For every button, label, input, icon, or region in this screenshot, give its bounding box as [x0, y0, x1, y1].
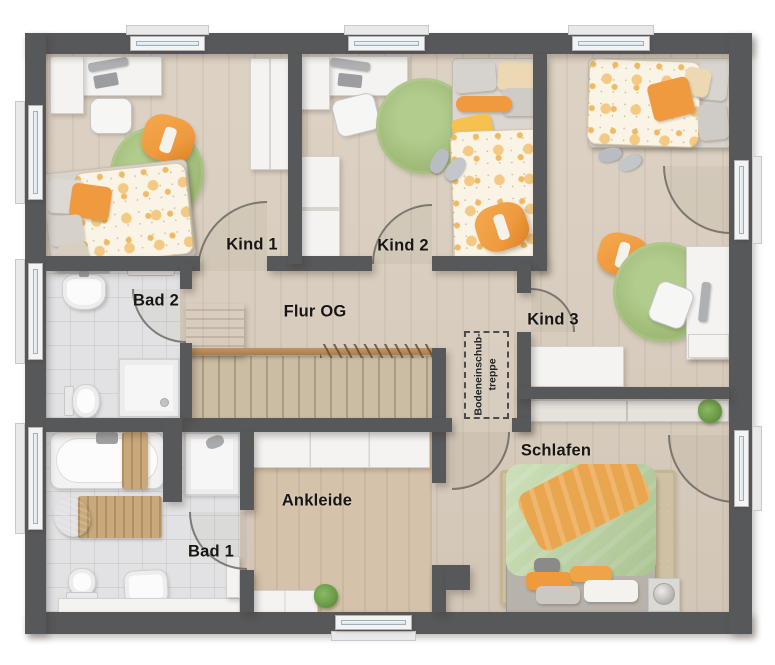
- duvet-wrap: [506, 464, 656, 576]
- wall-kind3-west: [517, 332, 531, 430]
- room-label-flur: Flur OG: [284, 303, 347, 322]
- blanket-roll-orange: [456, 96, 512, 112]
- wall-bad1-ankleide-upper: [240, 432, 254, 510]
- bed-group: [506, 464, 656, 618]
- window-sill: [15, 259, 25, 364]
- shower-tray: [118, 358, 180, 418]
- faucet-icon: [79, 270, 89, 277]
- wall-schlafen-stub: [446, 565, 470, 590]
- room-label-bad2: Bad 2: [133, 292, 179, 311]
- window-glass: [739, 166, 744, 234]
- corner-shelf: [688, 334, 729, 358]
- bed-group: [41, 159, 196, 272]
- wall-kind3-west-stub: [517, 264, 531, 293]
- window-sill: [331, 631, 416, 641]
- stair-railing-balusters: [320, 344, 434, 358]
- room-label-schlafen: Schlafen: [521, 442, 591, 461]
- bathtub-caddy: [122, 432, 148, 489]
- attic-stair-label: Bodeneinschub- treppe: [464, 331, 509, 419]
- toilet-bowl: [72, 384, 100, 418]
- sideboard: [526, 346, 624, 387]
- window-sill: [15, 423, 25, 534]
- keyboard-icon: [337, 73, 362, 88]
- wall-bad2-east-lower: [180, 343, 192, 418]
- wall-bad1-partition: [163, 418, 182, 502]
- desk-chair: [90, 98, 132, 134]
- wall-kind1-south: [46, 256, 200, 271]
- wall-hall-north-mid: [267, 256, 372, 271]
- attic-stair-label-line2: treppe: [486, 331, 500, 419]
- cabinet-bottom: [252, 590, 318, 614]
- pillow-gray: [536, 586, 580, 604]
- staircase-treads: [186, 356, 432, 418]
- bed-group: [588, 58, 732, 148]
- room-label-kind2: Kind 2: [377, 237, 429, 256]
- wall-exterior-right: [729, 33, 752, 634]
- sink: [62, 274, 106, 310]
- window-glass: [33, 111, 38, 194]
- pillow: [696, 103, 730, 142]
- window-glass: [354, 41, 419, 46]
- wall-kind3-schlafen: [517, 387, 729, 399]
- wall-hall-east: [432, 348, 446, 483]
- window-glass: [341, 620, 406, 625]
- window-glass: [136, 41, 199, 46]
- window-sill: [126, 25, 209, 35]
- wardrobe: [250, 58, 290, 170]
- window-sill: [344, 25, 429, 35]
- wall-schlafen-north-stub: [512, 418, 531, 432]
- window-glass: [578, 41, 644, 46]
- floor-plan: Bodeneinschub- treppe Kind 1 Kind 2 Kind…: [0, 0, 775, 665]
- window-glass: [33, 269, 38, 354]
- bath-faucet-icon: [96, 432, 118, 444]
- window-glass: [33, 433, 38, 524]
- attic-stair-label-line1: Bodeneinschub-: [472, 331, 486, 419]
- plant-icon: [698, 399, 722, 423]
- window-sill: [752, 426, 762, 511]
- wall-bad1-ankleide-lower: [240, 570, 254, 612]
- room-label-kind3: Kind 3: [527, 311, 579, 330]
- wall-kind2-kind3-divider: [533, 54, 547, 271]
- room-label-kind1: Kind 1: [226, 236, 278, 255]
- wall-ankleide-schlafen-south: [432, 565, 446, 612]
- wall-bad2-east-upper: [180, 264, 192, 289]
- shower-drain-icon: [160, 398, 169, 407]
- wardrobe: [298, 156, 340, 262]
- window-sill: [15, 101, 25, 204]
- wall-kind1-kind2-divider: [288, 54, 302, 264]
- window-sill: [752, 156, 762, 244]
- desk-return: [50, 56, 84, 114]
- wall-hall-south: [46, 418, 452, 432]
- pillow-white: [584, 580, 638, 602]
- window-sill: [568, 25, 654, 35]
- table-lamp-icon: [653, 583, 675, 605]
- room-label-bad1: Bad 1: [188, 543, 234, 562]
- window-glass: [739, 436, 744, 501]
- room-label-ankleide: Ankleide: [282, 492, 352, 511]
- bath-mat: [78, 496, 162, 538]
- plant-icon: [314, 584, 338, 608]
- wardrobe-top: [250, 430, 430, 468]
- pillow: [453, 60, 497, 94]
